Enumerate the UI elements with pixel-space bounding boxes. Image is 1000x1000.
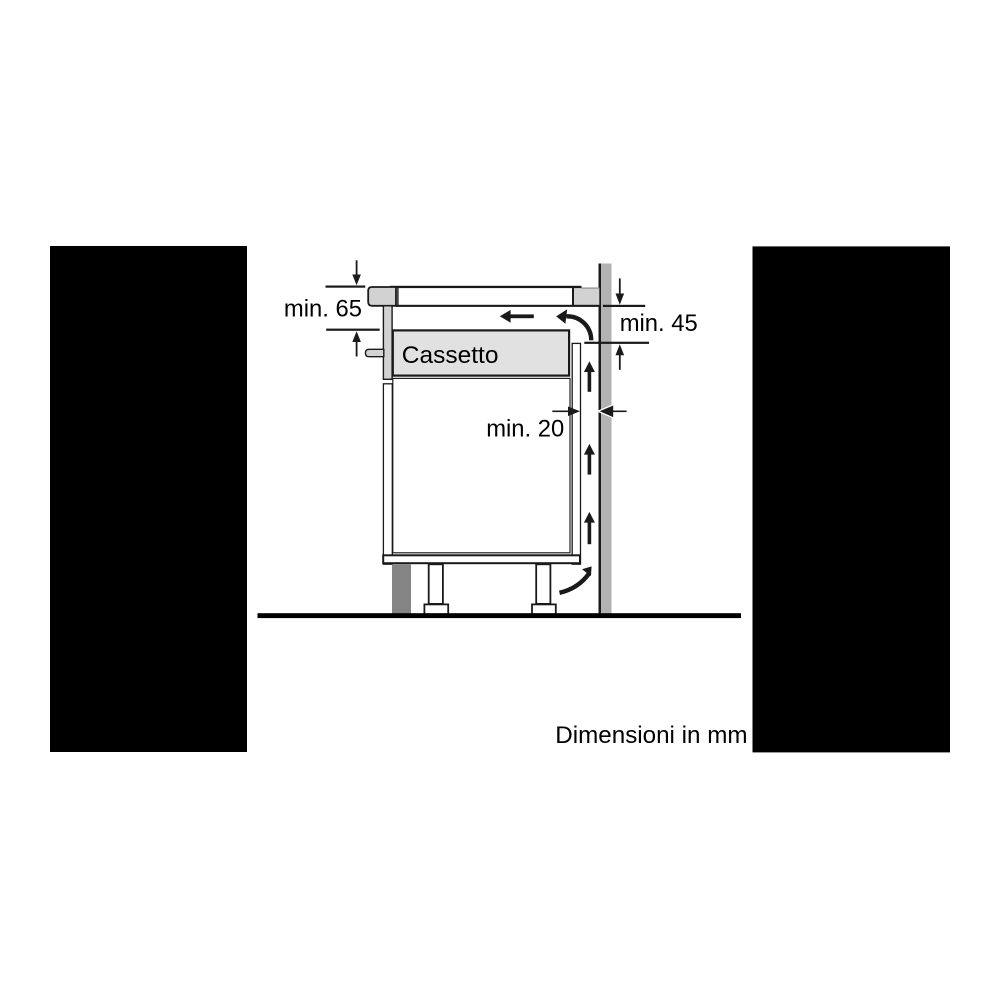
svg-text:min. 45: min. 45 — [620, 310, 698, 337]
svg-text:Dimensioni in mm: Dimensioni in mm — [555, 722, 747, 749]
svg-text:min. 20: min. 20 — [486, 415, 564, 442]
svg-text:Cassetto: Cassetto — [402, 342, 499, 369]
svg-text:min. 65: min. 65 — [284, 295, 362, 322]
